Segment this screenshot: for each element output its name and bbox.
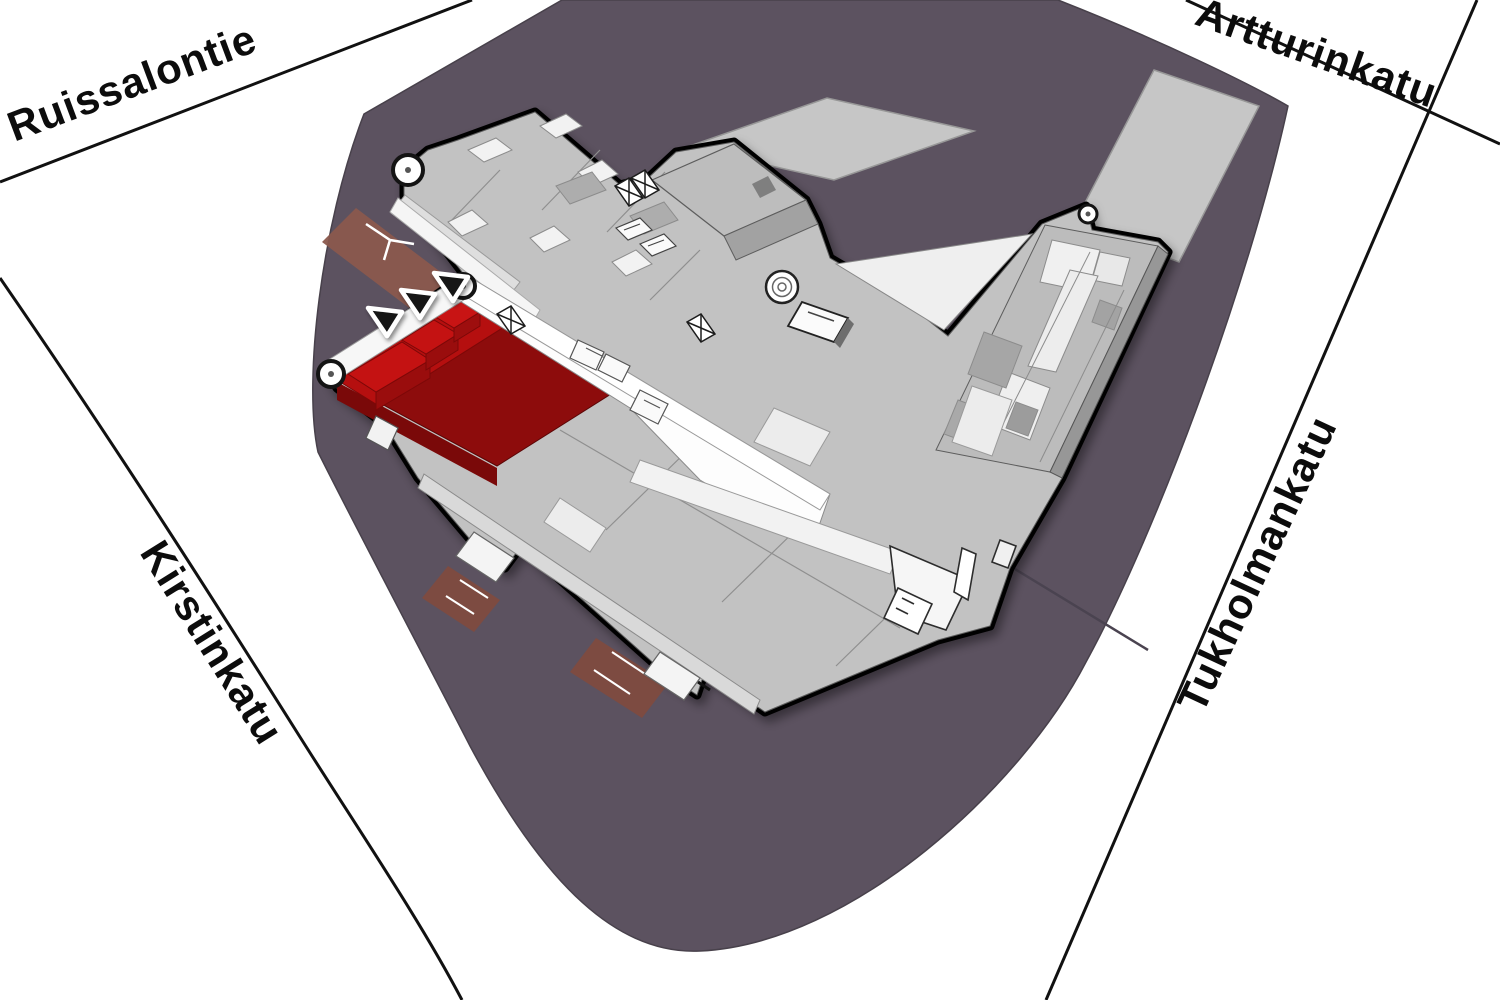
stair-tower-icon <box>393 155 423 185</box>
spiral-ramp-icon <box>766 271 798 303</box>
campus-map: Ruissalontie Artturinkatu Tukholmankatu … <box>0 0 1500 1000</box>
stair-tower-icon <box>1079 205 1097 223</box>
map-canvas: Ruissalontie Artturinkatu Tukholmankatu … <box>0 0 1500 1000</box>
stair-tower-icon <box>318 361 344 387</box>
